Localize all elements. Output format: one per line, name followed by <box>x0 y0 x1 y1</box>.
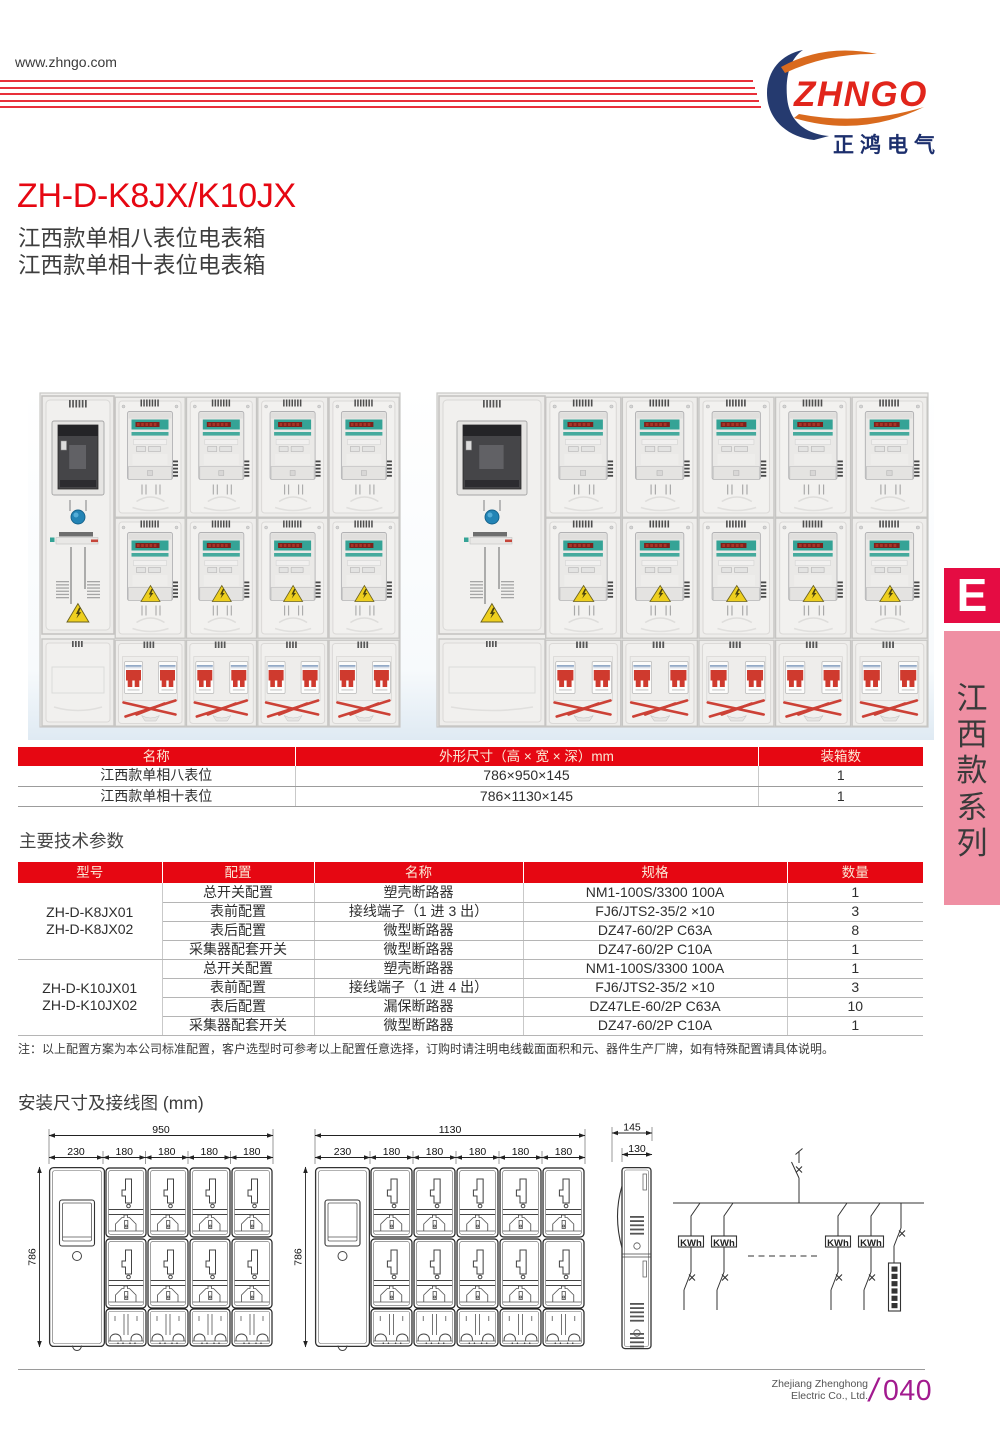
svg-text:KWh: KWh <box>860 1238 882 1249</box>
svg-text:230: 230 <box>67 1146 85 1158</box>
svg-text:180: 180 <box>426 1146 444 1158</box>
svg-text:786: 786 <box>27 1248 39 1266</box>
svg-text:145: 145 <box>623 1122 641 1134</box>
svg-text:KWh: KWh <box>713 1238 735 1249</box>
svg-text:130: 130 <box>628 1143 646 1155</box>
svg-text:180: 180 <box>383 1146 401 1158</box>
svg-text:KWh: KWh <box>680 1238 702 1249</box>
svg-text:180: 180 <box>512 1146 530 1158</box>
svg-text:230: 230 <box>334 1146 352 1158</box>
svg-text:180: 180 <box>555 1146 573 1158</box>
svg-text:180: 180 <box>158 1146 176 1158</box>
svg-text:950: 950 <box>152 1124 170 1136</box>
svg-text:180: 180 <box>243 1146 261 1158</box>
svg-text:180: 180 <box>200 1146 218 1158</box>
svg-text:180: 180 <box>115 1146 133 1158</box>
svg-text:正鸿电气: 正鸿电气 <box>833 133 941 157</box>
svg-text:ZHNGO: ZHNGO <box>793 75 928 114</box>
svg-text:1130: 1130 <box>439 1124 462 1136</box>
svg-text:786: 786 <box>293 1248 305 1266</box>
svg-text:180: 180 <box>469 1146 487 1158</box>
svg-text:KWh: KWh <box>827 1238 849 1249</box>
